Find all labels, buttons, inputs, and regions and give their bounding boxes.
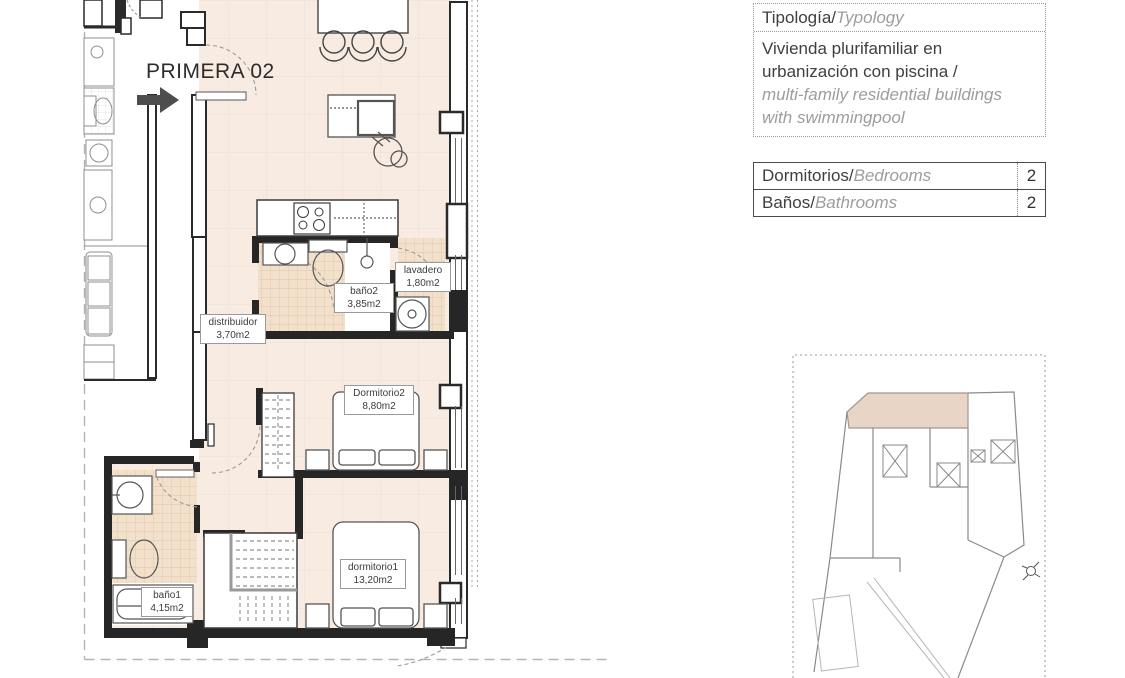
elevator-cores (883, 440, 1015, 487)
typology-label-en: Typology (836, 8, 904, 27)
room-label-bano1: baño1 4,15m2 (141, 587, 193, 617)
neighbour-unit (84, 0, 162, 380)
unit-title: PRIMERA 02 (146, 60, 275, 84)
highlighted-unit (847, 393, 968, 428)
kitchen-counter (257, 200, 398, 236)
north-compass-icon (1022, 562, 1040, 580)
specs-table: Dormitorios/Bedrooms 2 Baños/Bathrooms 2 (753, 162, 1046, 217)
typology-header: Tipología/Typology (754, 4, 1045, 32)
room-label-dormitorio2: Dormitorio2 8,80m2 (344, 385, 414, 415)
room-label-lavadero: lavadero 1,80m2 (395, 262, 451, 292)
spec-row-bathrooms: Baños/Bathrooms 2 (754, 190, 1045, 216)
bathrooms-count: 2 (1017, 190, 1045, 216)
typology-box: Tipología/Typology Vivienda plurifamilia… (753, 3, 1046, 137)
room-label-dormitorio1: dormitorio1 13,20m2 (340, 559, 406, 589)
bedrooms-count: 2 (1017, 163, 1045, 189)
typology-description: Vivienda plurifamiliar en urbanización c… (754, 32, 1045, 136)
floor-plan-sheet: PRIMERA 02 distribuidor 3,70m2 baño2 3,8… (0, 0, 1125, 678)
site-key-plan (793, 355, 1045, 678)
entrance-arrow-icon (137, 86, 179, 114)
laundry-fixtures (396, 297, 429, 331)
setback-dotted-lines (472, 0, 478, 588)
room-label-distribuidor: distribuidor 3,70m2 (200, 314, 266, 344)
stairs (204, 533, 297, 628)
typology-label-es: Tipología/ (762, 8, 836, 27)
spec-row-bedrooms: Dormitorios/Bedrooms 2 (754, 163, 1045, 190)
room-label-bano2: baño2 3,85m2 (334, 283, 394, 313)
